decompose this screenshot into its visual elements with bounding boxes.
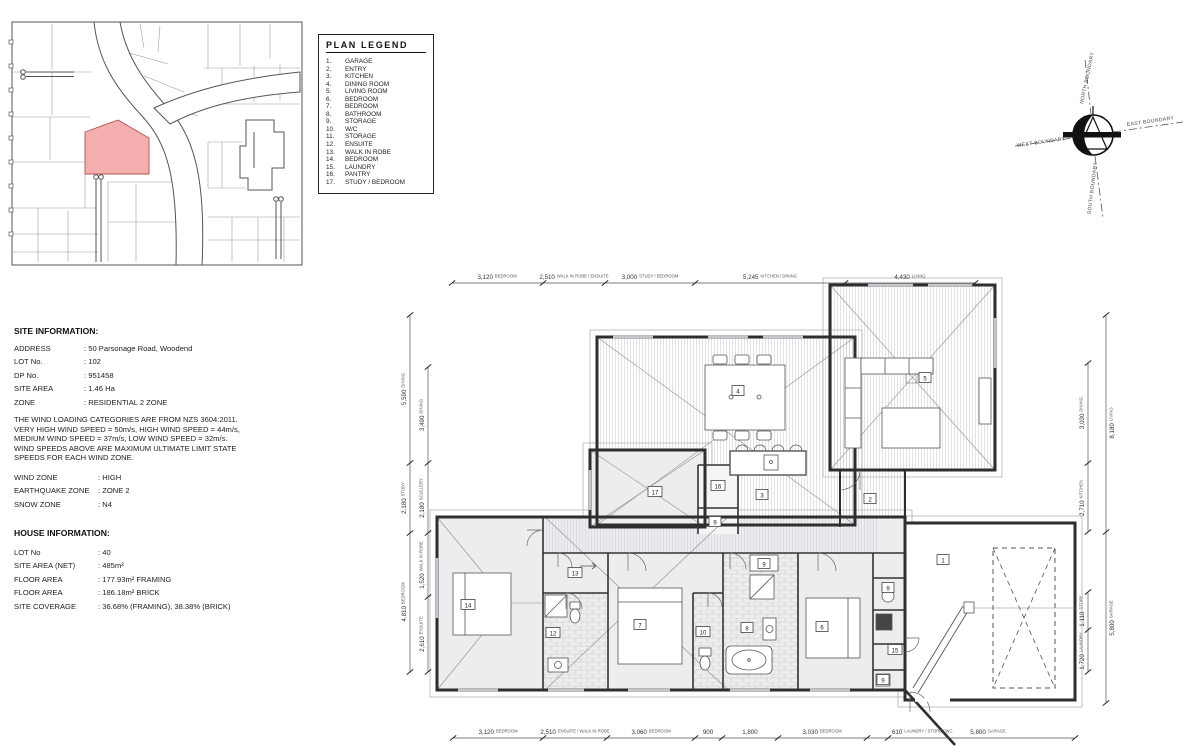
info-row: SNOW ZONE: N4 (14, 498, 130, 511)
dim-label: 2,510ENSUITE / WALK IN ROBE (540, 729, 609, 737)
info-row: WIND ZONE: HIGH (14, 471, 130, 484)
dim-label: 5,245KITCHEN / DINING (743, 274, 797, 282)
legend-item: 15.LAUNDRY (326, 164, 426, 172)
zone-table: WIND ZONE: HIGH EARTHQUAKE ZONE: ZONE 2 … (14, 471, 130, 511)
info-row: SITE COVERAGE: 36.68% (FRAMING), 38.38% … (14, 600, 231, 613)
dim-label: 8,180LIVING (1109, 407, 1117, 438)
north-boundary-label: NORTH BOUNDARY (1079, 51, 1096, 104)
building-footprint (240, 120, 284, 190)
svg-text:10: 10 (700, 630, 707, 636)
house-info-title: HOUSE INFORMATION: (14, 528, 231, 538)
toilet-wc (699, 648, 711, 670)
dim-label: 4,810BEDROOM (401, 582, 409, 622)
north-symbol (1063, 106, 1121, 155)
dim-label: 1,800 (742, 729, 758, 736)
svg-text:17: 17 (652, 490, 659, 496)
site-subdivision-map (8, 12, 308, 267)
west-boundary-label: WEST BOUNDARY (1016, 136, 1066, 149)
site-information: SITE INFORMATION: ADDRESS: 50 Parsonage … (14, 326, 192, 409)
dim-label: 3,490DINING (419, 399, 427, 431)
wind-loading-note: THE WIND LOADING CATEGORIES ARE FROM NZS… (14, 415, 246, 463)
legend-item: 10.W/C (326, 126, 426, 134)
room-marker-bedroom6: 6 (816, 622, 828, 632)
legend-item: 14.BEDROOM (326, 156, 426, 164)
svg-text:14: 14 (465, 603, 472, 609)
legend-item: 4.DINING ROOM (326, 81, 426, 89)
info-row: DP No.: 951458 (14, 369, 192, 382)
dim-label: 1,720LAUNDRY (1079, 632, 1087, 670)
dim-label: 3,120BEDROOM (477, 274, 517, 282)
dim-label: 2,510WALK IN ROBE / ENSUITE (539, 274, 608, 282)
dim-label: 2,180SCULLERY (419, 478, 427, 518)
room-marker-laundry: 15 (888, 645, 902, 655)
room-marker-bedroom7: 7 (634, 620, 646, 630)
bed-bedroom7 (618, 588, 682, 664)
legend-item: 2.ENTRY (326, 66, 426, 74)
info-row: ZONE: RESIDENTIAL 2 ZONE (14, 396, 192, 409)
room-marker-wir: 13 (568, 568, 582, 578)
room-marker-study: 17 (648, 487, 662, 497)
dim-label: 5,800GARAGE (970, 729, 1006, 737)
vanity-bathroom (763, 618, 776, 640)
room-marker-living: 5 (919, 373, 931, 383)
dim-label: 2,180STUDY (401, 482, 409, 514)
room-marker-dining: 4 (732, 386, 744, 396)
room-marker-garage: 1 (937, 555, 949, 565)
svg-text:13: 13 (572, 571, 579, 577)
legend-item: 1.GARAGE (326, 58, 426, 66)
dim-label: 1,520WALK IN ROBE (419, 541, 427, 589)
legend-item: 5.LIVING ROOM (326, 88, 426, 96)
dimension-labels-bottom: 3,120BEDROOM 2,510ENSUITE / WALK IN ROBE… (478, 729, 1005, 737)
room-marker-store-d: 9 (709, 517, 721, 527)
legend-item: 17.STUDY / BEDROOM (326, 179, 426, 187)
room-marker-store-c: 9 (877, 675, 889, 685)
drawing-sheet: PLAN LEGEND 1.GARAGE 2.ENTRY 3.KITCHEN 4… (0, 0, 1200, 755)
shower-bathroom (750, 575, 774, 599)
map-boundary (12, 22, 302, 265)
room-marker-bedroom14: 14 (461, 600, 475, 610)
room-marker-linen: 9 (758, 559, 770, 569)
legend-item: 9.STORAGE (326, 118, 426, 126)
info-row: LOT No.: 102 (14, 355, 192, 368)
legend-title: PLAN LEGEND (326, 40, 426, 53)
dim-label: 610LAUNDRY / STORE / WC (892, 729, 953, 737)
plan-legend: PLAN LEGEND 1.GARAGE 2.ENTRY 3.KITCHEN 4… (318, 34, 434, 194)
compass-rose: NORTH BOUNDARY EAST BOUNDARY WEST BOUNDA… (1015, 50, 1185, 220)
room-marker-wc: 10 (696, 627, 710, 637)
floor-plan: 14 13 12 7 10 8 9 6 9 15 9 16 9 3 4 2 5 … (398, 258, 1200, 755)
legend-item: 12.ENSUITE (326, 141, 426, 149)
dim-label: 3,060BEDROOM (631, 729, 671, 737)
legend-item: 8.BATHROOM (326, 111, 426, 119)
room-marker-entry: 2 (864, 494, 876, 504)
info-row: FLOOR AREA: 186.18m² BRICK (14, 586, 231, 599)
info-row: FLOOR AREA: 177.93m² FRAMING (14, 573, 231, 586)
dim-label: 3,000STUDY / BEDROOM (622, 274, 679, 282)
dining-table (705, 355, 785, 440)
dim-label: 3,030BEDROOM (802, 729, 842, 737)
room-marker-kitchen: 3 (756, 490, 768, 500)
legend-item: 16.PANTRY (326, 171, 426, 179)
svg-text:16: 16 (715, 484, 722, 490)
lot-lines (13, 24, 300, 262)
site-info-title: SITE INFORMATION: (14, 326, 192, 336)
room-marker-pantry: 16 (711, 481, 725, 491)
highlighted-lot (85, 120, 149, 174)
svg-text:15: 15 (892, 648, 899, 654)
info-row: ADDRESS: 50 Parsonage Road, Woodend (14, 342, 192, 355)
room-marker-ensuite: 12 (546, 628, 560, 638)
legend-item: 3.KITCHEN (326, 73, 426, 81)
info-row: EARTHQUAKE ZONE: ZONE 2 (14, 484, 130, 497)
legend-item: 11.STORAGE (326, 133, 426, 141)
bath-tub (726, 646, 772, 674)
dim-label: 2,710KITCHEN (1079, 480, 1087, 516)
dim-label: 3,030DINING (1079, 397, 1087, 429)
dim-label: 5,590DINING (401, 373, 409, 405)
legend-item: 13.WALK IN ROBE (326, 149, 426, 157)
info-row: SITE AREA: 1.46 Ha (14, 382, 192, 395)
legend-item: 7.BEDROOM (326, 103, 426, 111)
bed-bedroom6 (806, 598, 860, 658)
south-boundary-label: SOUTH BOUNDARY (1087, 161, 1099, 214)
room-marker-store-b: 9 (882, 583, 894, 593)
dim-label: 3,120BEDROOM (478, 729, 518, 737)
house-information: HOUSE INFORMATION: LOT No: 40 SITE AREA … (14, 528, 231, 613)
dimension-labels-left: 5,590DINING 2,180STUDY 4,810BEDROOM 3,49… (401, 373, 427, 652)
info-row: SITE AREA (NET): 485m² (14, 559, 231, 572)
room-marker-bathroom: 8 (741, 623, 753, 633)
dimension-labels-right: 8,180LIVING 5,800GARAGE 3,030DINING 2,71… (1079, 397, 1117, 670)
dim-label: 2,610ENSUITE (419, 616, 427, 652)
info-row: LOT No: 40 (14, 546, 231, 559)
dim-label: 900 (703, 729, 714, 736)
svg-text:12: 12 (550, 631, 557, 637)
legend-item: 6.BEDROOM (326, 96, 426, 104)
dimension-labels-top: 3,120BEDROOM 2,510WALK IN ROBE / ENSUITE… (477, 274, 925, 282)
dim-label: 4,430LIVING (894, 274, 925, 282)
dim-label: 5,800GARAGE (1109, 600, 1117, 636)
east-boundary-label: EAST BOUNDARY (1126, 115, 1174, 128)
